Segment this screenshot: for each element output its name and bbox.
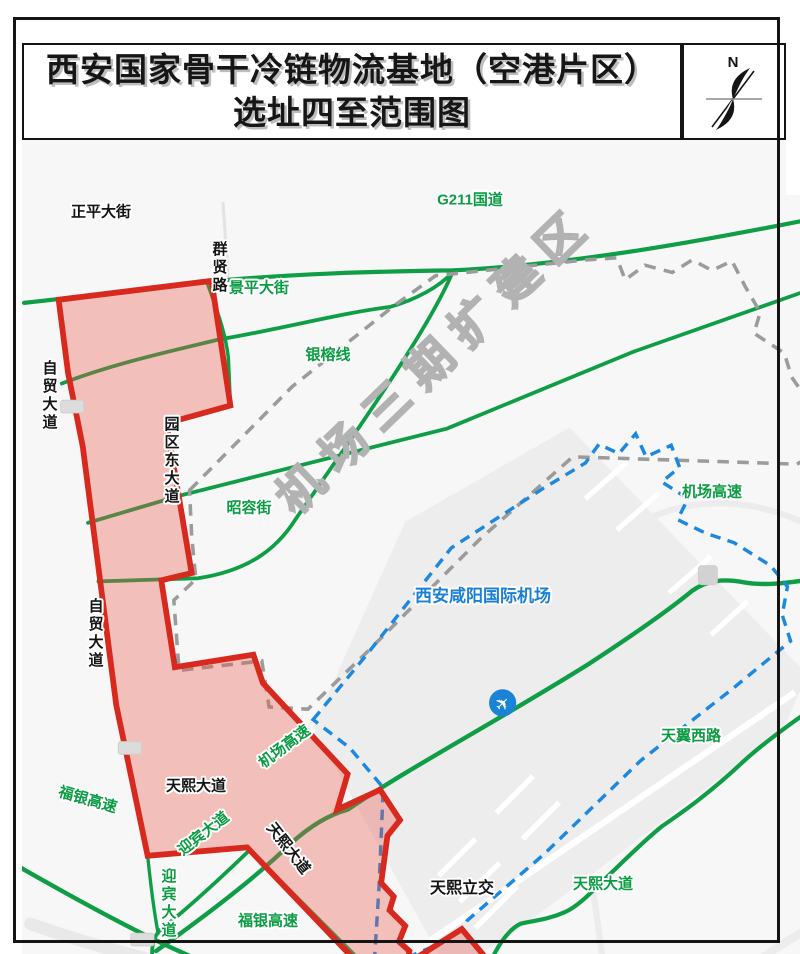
compass-rose-icon: N bbox=[684, 45, 783, 137]
road-label-tianxi-west: 天熙大道 bbox=[166, 775, 226, 796]
road-label-zimao-north: 自贸大道 bbox=[39, 360, 60, 432]
road-label-g211: G211国道 bbox=[437, 189, 503, 210]
road-label-zhengping: 正平大街 bbox=[71, 201, 131, 222]
toll-station-marker bbox=[698, 566, 717, 585]
road-label-qunxian: 群贤路 bbox=[209, 241, 230, 295]
map-title-line1: 西安国家骨干冷链物流基地（空港片区） bbox=[46, 49, 658, 91]
road-label-airport-expressway-east: 机场高速 bbox=[682, 481, 742, 502]
road-label-yuanqudong: 园区东大道 bbox=[161, 416, 182, 506]
road-label-jingping: 景平大街 bbox=[229, 277, 289, 298]
map-title-line2: 选址四至范围图 bbox=[233, 92, 471, 134]
map-canvas: ✈ 机场三期扩建区 正平大街 群贤路 景平大街 G211国道 银榕线 自贸大道 … bbox=[22, 140, 786, 946]
road-label-yingbin-south: 迎宾大道 bbox=[158, 868, 179, 940]
road-label-fuyin-south: 福银高速 bbox=[238, 910, 298, 931]
map-document-page: ✈ 机场三期扩建区 正平大街 群贤路 景平大街 G211国道 银榕线 自贸大道 … bbox=[0, 0, 800, 954]
compass-north-label: N bbox=[728, 54, 739, 71]
map-title-box: 西安国家骨干冷链物流基地（空港片区） 选址四至范围图 bbox=[22, 43, 682, 140]
airplane-icon: ✈ bbox=[489, 689, 516, 716]
compass-box: N bbox=[682, 43, 786, 140]
road-label-tianxi-east: 天熙大道 bbox=[573, 873, 633, 894]
road-label-tianyi-xilu: 天翼西路 bbox=[661, 725, 721, 746]
interchange-label-tianxi: 天熙立交 bbox=[430, 874, 494, 898]
road-label-zhaorong: 昭容街 bbox=[226, 497, 271, 518]
airport-name-label: 西安咸阳国际机场 bbox=[415, 582, 551, 607]
map-graphics: ✈ bbox=[22, 140, 800, 954]
road-label-zimao-south: 自贸大道 bbox=[85, 598, 106, 670]
road-label-yinrong: 银榕线 bbox=[305, 344, 350, 365]
